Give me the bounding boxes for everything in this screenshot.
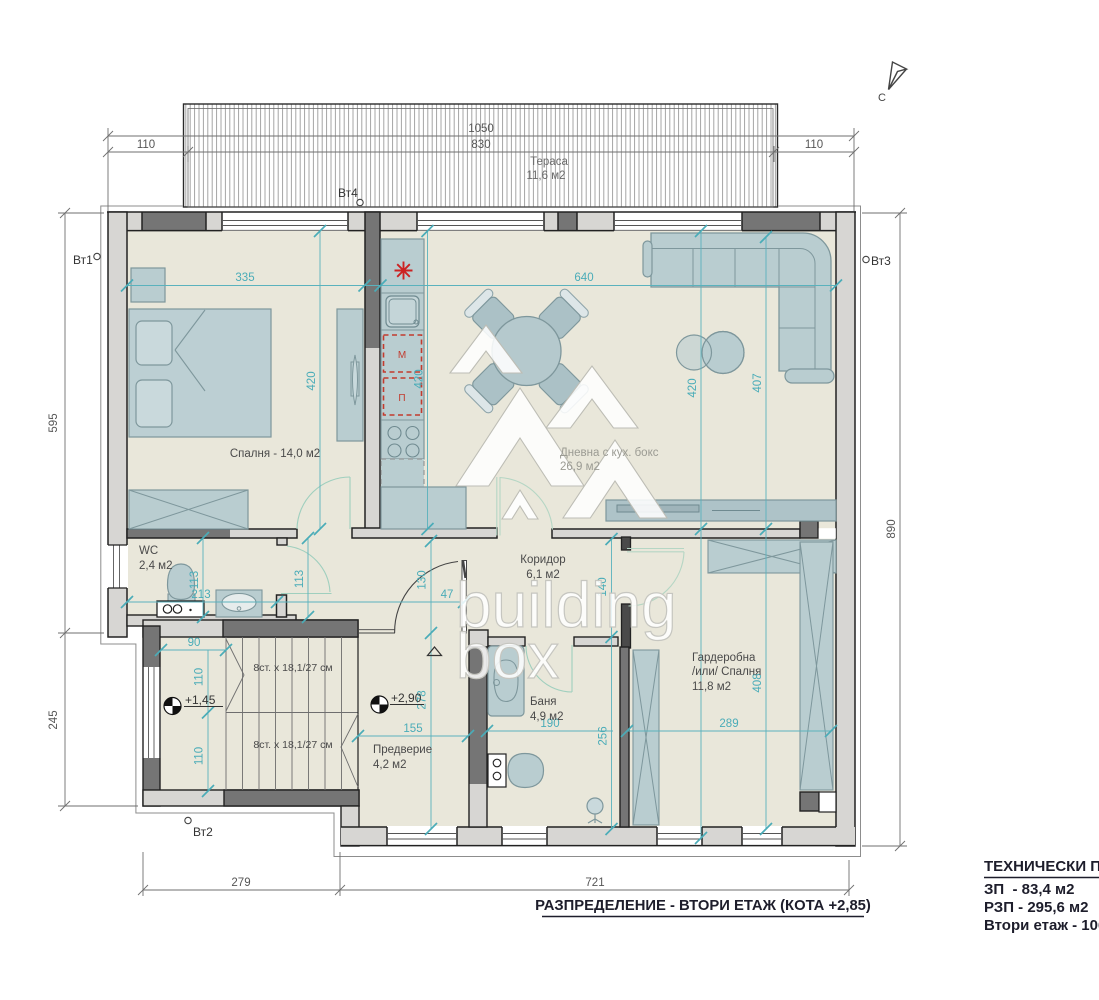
svg-text:110: 110: [194, 668, 206, 686]
svg-text:155: 155: [403, 723, 422, 735]
svg-text:420: 420: [687, 378, 699, 397]
svg-text:110: 110: [805, 139, 823, 151]
svg-text:WC: WC: [139, 545, 158, 557]
svg-text:Коридор: Коридор: [520, 554, 565, 566]
svg-text:90: 90: [188, 637, 201, 649]
svg-text:279: 279: [231, 877, 250, 889]
svg-text:26,9 м2: 26,9 м2: [560, 461, 600, 473]
svg-text:4,2 м2: 4,2 м2: [373, 759, 406, 771]
svg-text:130: 130: [417, 570, 429, 589]
svg-text:Вт1: Вт1: [73, 253, 93, 267]
svg-text:Вт3: Вт3: [871, 254, 891, 268]
svg-text:С: С: [878, 92, 886, 104]
svg-text:Гардеробна: Гардеробна: [692, 652, 756, 664]
svg-text:245: 245: [48, 710, 60, 729]
svg-text:П: П: [398, 393, 405, 404]
svg-text:8ст. x 18,1/27 см: 8ст. x 18,1/27 см: [253, 739, 332, 751]
svg-text:289: 289: [719, 718, 738, 730]
svg-text:Вт2: Вт2: [193, 825, 213, 839]
svg-text:11,8 м2: 11,8 м2: [692, 681, 731, 693]
svg-text:box: box: [456, 620, 559, 692]
svg-text:721: 721: [585, 877, 604, 889]
svg-text:4,9 м2: 4,9 м2: [530, 711, 563, 723]
svg-text:РЗП - 295,6 м2: РЗП - 295,6 м2: [984, 899, 1088, 916]
svg-text:8ст. x 18,1/27 см: 8ст. x 18,1/27 см: [253, 662, 332, 674]
svg-text:110: 110: [194, 747, 206, 765]
svg-text:Дневна с кух. бокс: Дневна с кух. бокс: [560, 447, 659, 459]
svg-text:ЗП - 83,4 м2: ЗП - 83,4 м2: [984, 881, 1074, 898]
svg-text:2,4 м2: 2,4 м2: [139, 560, 172, 572]
svg-text:Баня: Баня: [530, 696, 557, 708]
svg-text:113: 113: [294, 570, 306, 588]
svg-text:256: 256: [598, 726, 610, 745]
svg-text:420: 420: [414, 369, 426, 388]
svg-text:213: 213: [191, 589, 210, 601]
svg-text:Предверие: Предверие: [373, 744, 432, 756]
svg-text:11,6 м2: 11,6 м2: [526, 170, 565, 182]
svg-text:113: 113: [189, 571, 201, 589]
svg-text:420: 420: [306, 371, 318, 390]
svg-text:Спалня - 14,0 м2: Спалня - 14,0 м2: [230, 448, 320, 460]
svg-text:+1,45: +1,45: [185, 693, 216, 707]
svg-text:595: 595: [48, 413, 60, 432]
svg-text:6,1 м2: 6,1 м2: [526, 569, 559, 581]
svg-text:47: 47: [441, 589, 454, 601]
svg-text:/или/ Спалня: /или/ Спалня: [692, 666, 761, 678]
svg-text:Тераса: Тераса: [530, 156, 568, 168]
svg-text:1050: 1050: [468, 123, 494, 135]
svg-text:890: 890: [886, 519, 898, 538]
svg-text:Втори етаж - 106,4 м2: Втори етаж - 106,4 м2: [984, 917, 1099, 934]
svg-text:РАЗПРЕДЕЛЕНИЕ - ВТОРИ ЕТАЖ (КО: РАЗПРЕДЕЛЕНИЕ - ВТОРИ ЕТАЖ (КОТА +2,85): [535, 898, 871, 914]
svg-text:335: 335: [235, 272, 254, 284]
svg-text:+2,90: +2,90: [391, 691, 422, 705]
svg-text:407: 407: [752, 373, 764, 392]
svg-text:М: М: [398, 350, 406, 361]
svg-text:ТЕХНИЧЕСКИ ПОКАЗАТЕЛИ: ТЕХНИЧЕСКИ ПОКАЗАТЕЛИ: [984, 858, 1099, 875]
svg-text:640: 640: [574, 272, 593, 284]
svg-text:830: 830: [471, 139, 490, 151]
svg-text:110: 110: [137, 139, 155, 151]
svg-text:Вт4: Вт4: [338, 186, 358, 200]
